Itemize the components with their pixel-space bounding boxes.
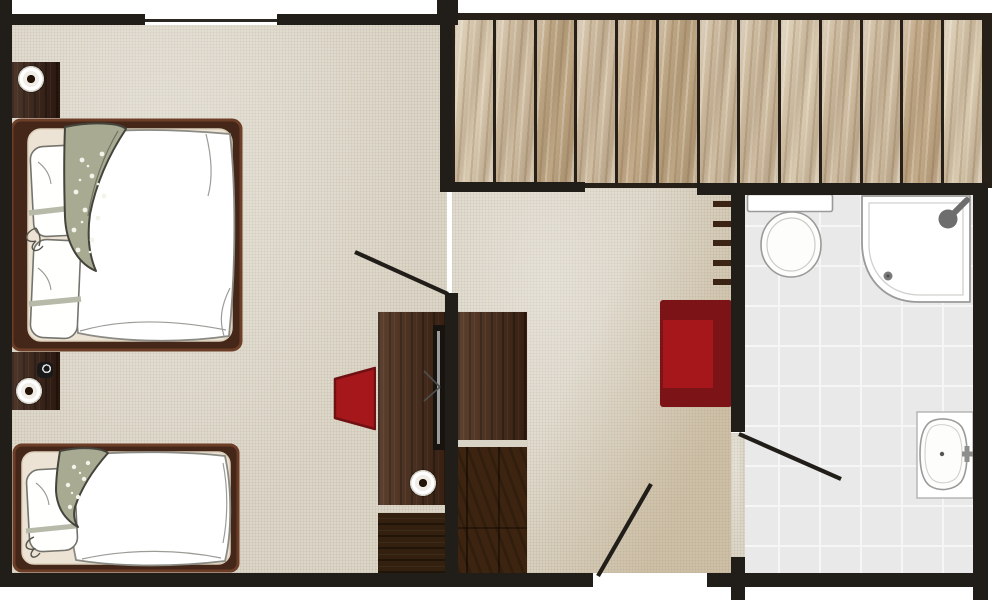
wall-top-b — [277, 14, 440, 25]
wardrobe-upper — [458, 312, 527, 440]
lamp-icon — [14, 376, 44, 406]
desk-cabinet — [378, 513, 447, 573]
deck-plank — [822, 20, 860, 183]
ladder-rung — [713, 201, 731, 207]
deck-plank — [781, 20, 819, 183]
lounge-chair — [660, 300, 732, 407]
deck-plank — [618, 20, 656, 183]
bathroom-door-threshold — [731, 433, 745, 557]
deck-plank — [740, 20, 778, 183]
wall-bathroom-left-upper — [731, 192, 745, 432]
deck-plank — [659, 20, 697, 183]
deck-plank — [944, 20, 982, 183]
ladder-rung — [713, 221, 731, 227]
deck-plank — [577, 20, 615, 183]
wall-bathroom-right — [973, 183, 988, 600]
wall-ladder — [713, 201, 731, 285]
wall-top-a — [12, 14, 145, 25]
wardrobe-shelf — [458, 440, 527, 447]
deck-plank — [496, 20, 534, 183]
deck-plank — [863, 20, 901, 183]
tv-screen — [437, 331, 440, 444]
wall-bottom-a — [0, 573, 593, 587]
clock-icon — [37, 362, 53, 378]
desk-chair — [332, 366, 376, 431]
lamp-icon — [409, 469, 437, 497]
ladder-rung — [713, 260, 731, 266]
double-bed — [10, 118, 243, 352]
ladder-rung — [713, 240, 731, 246]
deck — [447, 13, 992, 188]
wall-mid-stub — [445, 293, 458, 587]
wall-deck-bottom — [447, 182, 585, 192]
wall-bottom-b — [707, 573, 988, 587]
deck-plank — [903, 20, 941, 183]
shower-head-icon — [939, 210, 958, 229]
wall-left — [0, 0, 12, 587]
deck-plank — [700, 20, 738, 183]
deck-plank — [455, 20, 493, 183]
ladder-rung — [713, 279, 731, 285]
toilet — [746, 193, 838, 287]
washbasin — [916, 411, 974, 499]
window-line — [145, 19, 277, 22]
deck-plank — [537, 20, 575, 183]
lamp-icon — [16, 64, 46, 94]
wall-deck-divider — [440, 18, 452, 192]
floor-plan — [0, 0, 1000, 600]
corner-shower — [859, 193, 973, 305]
wardrobe-lower — [458, 447, 527, 573]
single-bed — [12, 443, 240, 573]
